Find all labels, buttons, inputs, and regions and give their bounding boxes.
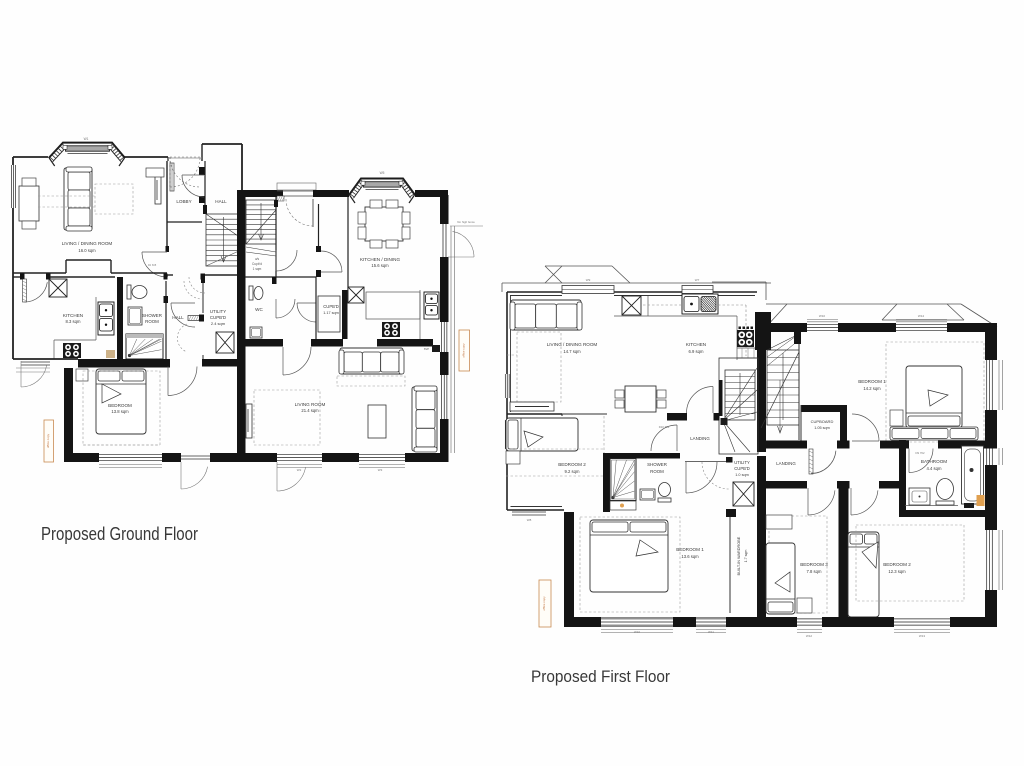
svg-text:W13: W13: [919, 634, 926, 638]
svg-text:9.2 sqm: 9.2 sqm: [565, 469, 580, 474]
svg-text:Proposed Ground Floor: Proposed Ground Floor: [41, 524, 198, 544]
svg-text:W14: W14: [918, 314, 925, 318]
svg-text:HALL: HALL: [215, 199, 227, 204]
svg-text:Proposed First Floor: Proposed First Floor: [531, 667, 670, 686]
svg-text:CUPB'D: CUPB'D: [734, 466, 749, 471]
svg-text:W3: W3: [378, 468, 383, 472]
svg-text:W12: W12: [806, 634, 813, 638]
svg-text:W10: W10: [634, 630, 641, 634]
svg-text:21.4 sqm: 21.4 sqm: [301, 408, 319, 413]
svg-text:W11: W11: [708, 630, 714, 634]
svg-text:7.8 sqm: 7.8 sqm: [807, 569, 822, 574]
svg-text:16.0 sqm: 16.0 sqm: [78, 248, 96, 253]
svg-text:13.8 sqm: 13.8 sqm: [111, 409, 129, 414]
svg-text:D2 608: D2 608: [148, 263, 157, 267]
svg-text:1.0 sqm: 1.0 sqm: [735, 473, 749, 477]
svg-text:13.6 sqm: 13.6 sqm: [681, 554, 699, 559]
svg-text:KITCHEN / DINING: KITCHEN / DINING: [360, 257, 400, 262]
svg-text:CUPB'D: CUPB'D: [323, 304, 338, 309]
svg-text:BEDROOM 2: BEDROOM 2: [883, 562, 911, 567]
svg-text:SVP: SVP: [424, 347, 429, 351]
svg-text:BEDROOM 2: BEDROOM 2: [558, 462, 586, 467]
svg-text:LIVING / DINING ROOM: LIVING / DINING ROOM: [547, 342, 598, 347]
svg-text:WC: WC: [255, 307, 263, 312]
svg-text:12.3 sqm: 12.3 sqm: [888, 569, 906, 574]
svg-text:6.9 sqm: 6.9 sqm: [689, 349, 704, 354]
svg-text:UTILITY: UTILITY: [210, 309, 226, 314]
svg-text:LANDING: LANDING: [690, 436, 710, 441]
svg-text:ROOM: ROOM: [145, 319, 159, 324]
svg-text:BATHROOM: BATHROOM: [921, 459, 947, 464]
svg-text:HALL: HALL: [172, 315, 184, 320]
svg-text:office copy: office copy: [542, 596, 546, 611]
svg-text:BEDROOM 1: BEDROOM 1: [676, 547, 704, 552]
svg-text:CUPB'D: CUPB'D: [210, 315, 226, 320]
svg-text:1.17 sqm: 1.17 sqm: [323, 311, 339, 315]
svg-text:KITCHEN: KITCHEN: [686, 342, 706, 347]
svg-text:4.4 sqm: 4.4 sqm: [927, 466, 942, 471]
svg-text:CUPBOARD: CUPBOARD: [811, 419, 834, 424]
svg-text:1 sqm: 1 sqm: [253, 267, 262, 271]
svg-text:W8: W8: [527, 518, 532, 522]
svg-text:BUILT-IN WARDROBE: BUILT-IN WARDROBE: [737, 536, 741, 575]
svg-text:2.4 sqm: 2.4 sqm: [211, 321, 226, 326]
svg-text:1.05 sqm: 1.05 sqm: [814, 426, 830, 430]
svg-text:LOBBY: LOBBY: [176, 199, 191, 204]
svg-text:14.7 sqm: 14.7 sqm: [563, 349, 581, 354]
svg-text:LANDING: LANDING: [776, 461, 796, 466]
svg-text:LIVING / DINING ROOM: LIVING / DINING ROOM: [62, 241, 113, 246]
svg-text:D10 762: D10 762: [659, 425, 670, 429]
svg-text:office copy: office copy: [46, 433, 50, 448]
svg-text:KITCHEN: KITCHEN: [63, 313, 83, 318]
svg-text:Cupb'd: Cupb'd: [252, 262, 262, 266]
svg-text:BEDROOM 3: BEDROOM 3: [800, 562, 828, 567]
svg-text:6m high fence: 6m high fence: [457, 220, 475, 224]
svg-text:BEDROOM 1: BEDROOM 1: [858, 379, 886, 384]
svg-text:W2: W2: [297, 468, 302, 472]
svg-text:SHOWER: SHOWER: [142, 313, 162, 318]
svg-text:SHOWER: SHOWER: [647, 462, 667, 467]
svg-text:W10: W10: [819, 314, 826, 318]
svg-text:office copy: office copy: [461, 343, 465, 358]
svg-text:W7: W7: [695, 278, 700, 282]
svg-text:ROOM: ROOM: [650, 469, 664, 474]
svg-text:15.6 sqm: 15.6 sqm: [371, 263, 389, 268]
svg-text:8.3 sqm: 8.3 sqm: [66, 319, 81, 324]
svg-text:W9: W9: [586, 278, 591, 282]
svg-text:u/s: u/s: [255, 257, 260, 261]
svg-text:UTILITY: UTILITY: [734, 460, 750, 465]
svg-text:14.2 sqm: 14.2 sqm: [863, 386, 881, 391]
svg-text:1.7 sqm: 1.7 sqm: [744, 550, 748, 563]
svg-text:BEDROOM: BEDROOM: [108, 403, 132, 408]
svg-text:W5: W5: [380, 171, 385, 175]
svg-text:W1: W1: [84, 137, 89, 141]
svg-text:LIVING ROOM: LIVING ROOM: [295, 402, 326, 407]
svg-text:D9 762: D9 762: [915, 451, 924, 455]
